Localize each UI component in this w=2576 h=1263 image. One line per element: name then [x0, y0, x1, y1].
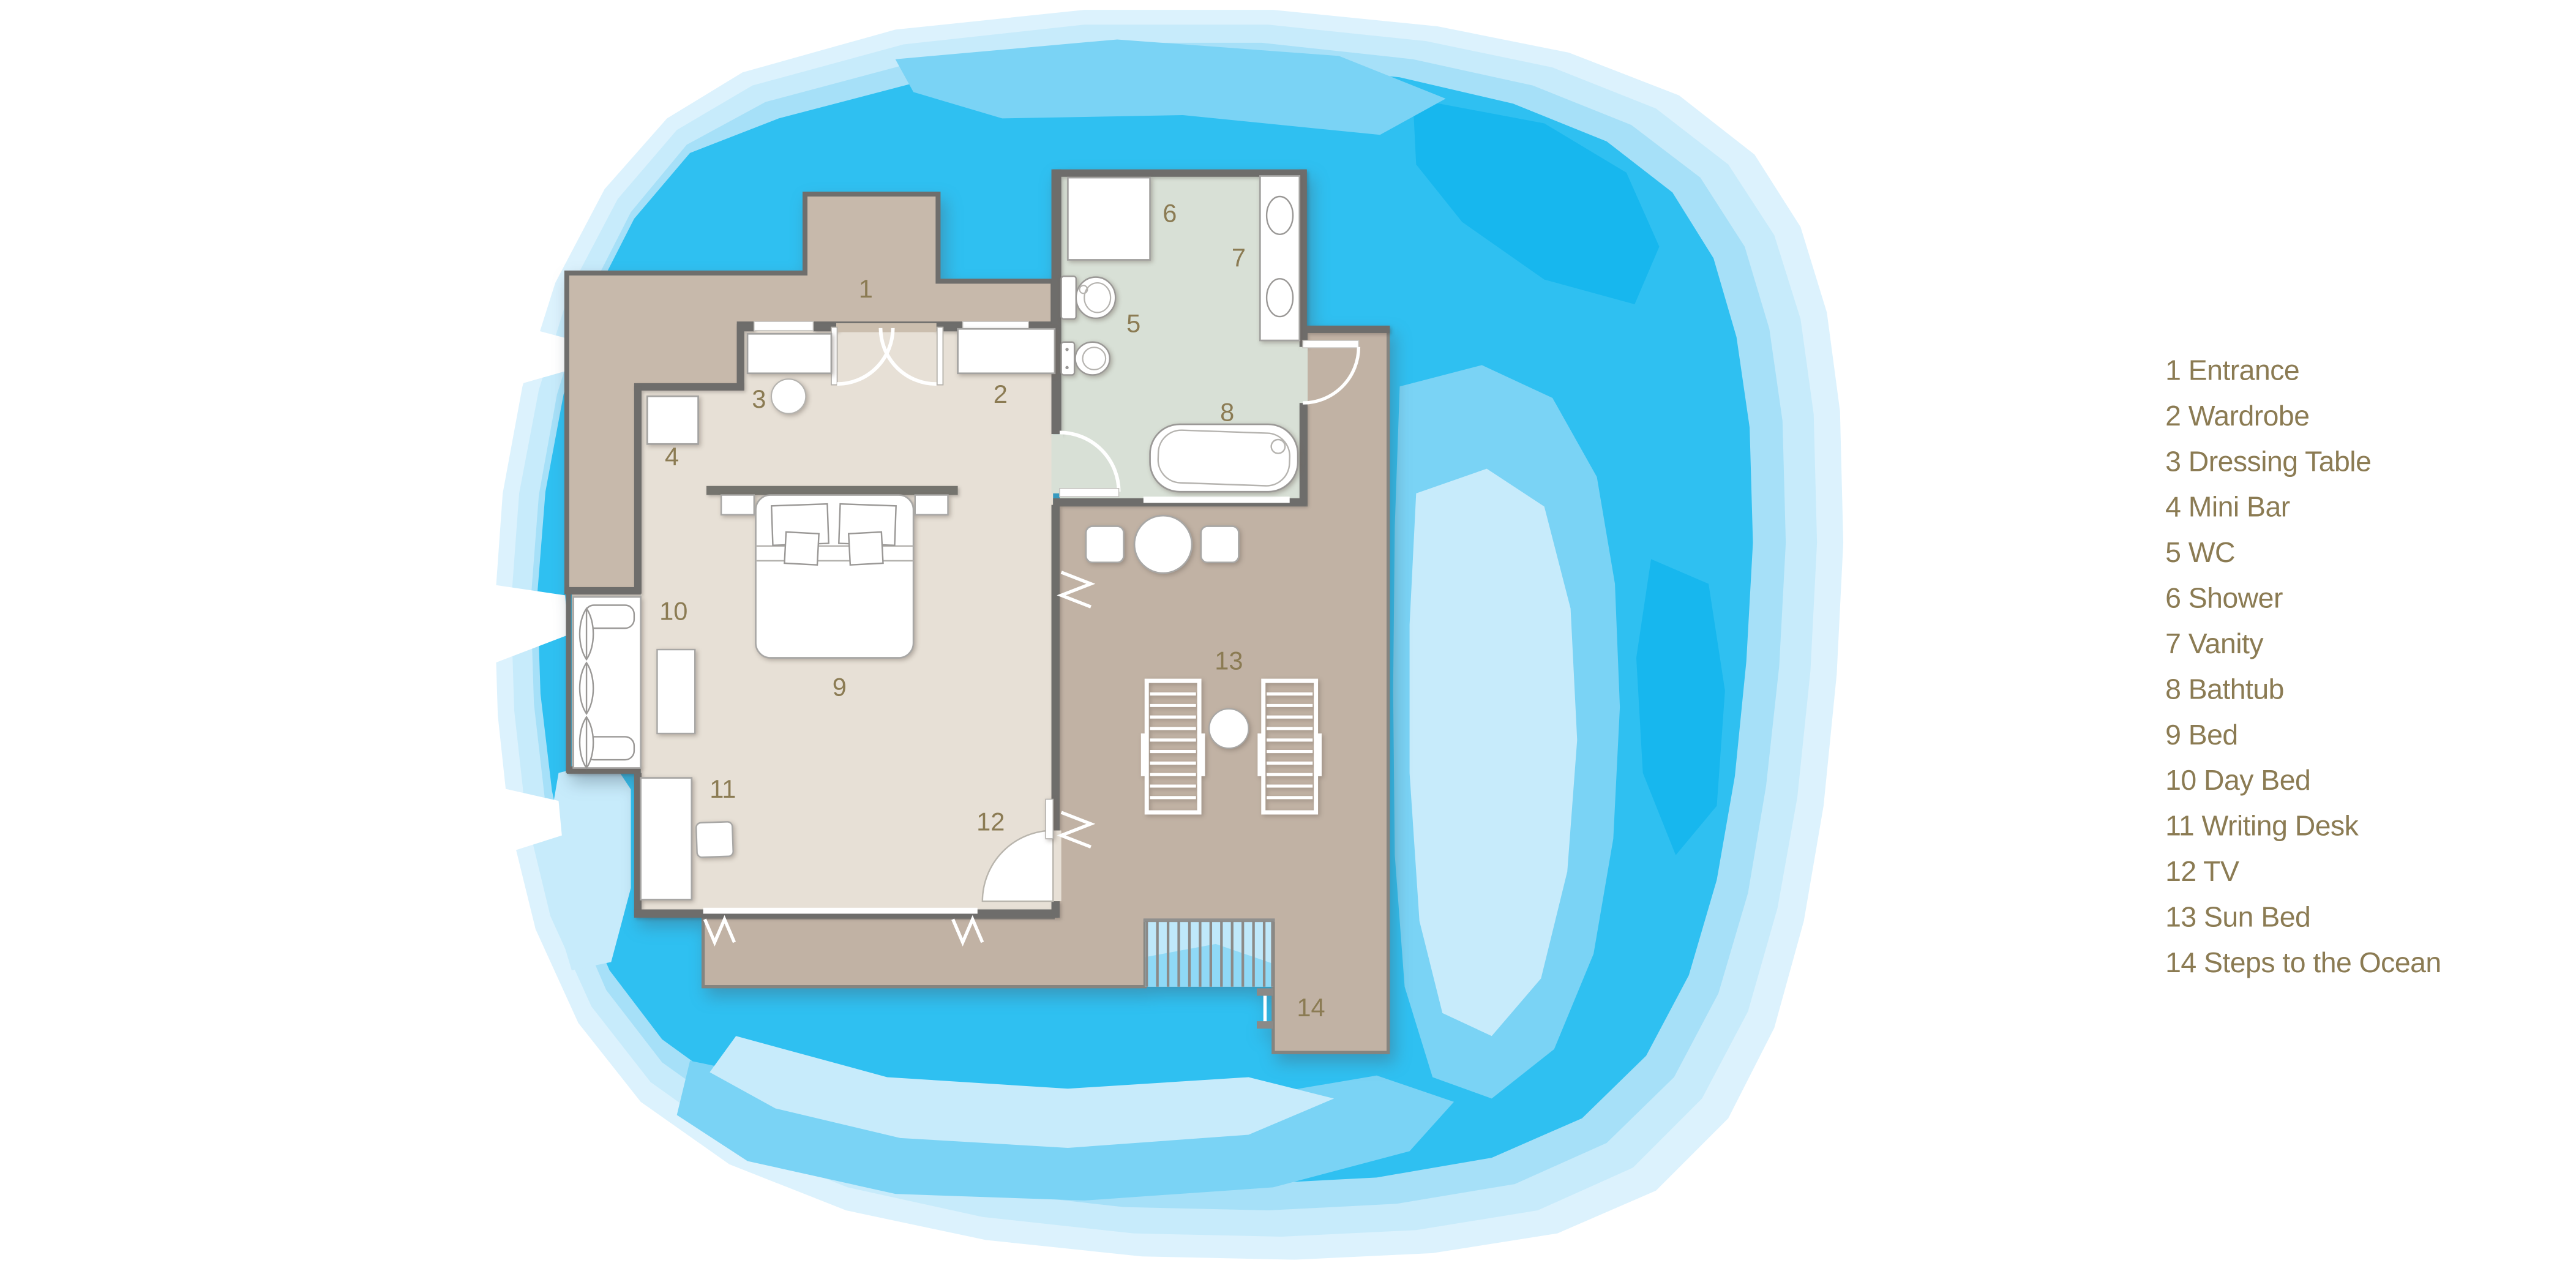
bottom-wall-window — [703, 908, 978, 914]
room-label-entrance: 1 — [859, 274, 873, 303]
sun-bed-left-arm-a — [1141, 733, 1147, 776]
side-table-symbol — [657, 650, 695, 733]
floor-plan-page: 1 2 3 4 5 6 7 8 9 10 11 12 13 14 1 Entra… — [0, 0, 2576, 1263]
legend: 1 Entrance 2 Wardrobe 3 Dressing Table 4… — [2165, 354, 2441, 978]
deck-chair-left — [1086, 527, 1124, 563]
wardrobe-symbol — [958, 329, 1055, 373]
deck-doorway — [1300, 347, 1308, 403]
room-label-writing-desk: 11 — [710, 774, 736, 803]
room-label-day-bed: 10 — [659, 597, 687, 626]
deck-table — [1134, 515, 1192, 573]
room-label-dressing-table: 3 — [752, 384, 766, 413]
entrance-door-leaf-right — [937, 328, 943, 385]
bed-pillow-small-left — [784, 532, 818, 565]
nightstand-left — [721, 495, 754, 515]
vanity-sink-bottom — [1267, 279, 1293, 317]
wall-step-vertical — [737, 324, 744, 389]
mini-bar-symbol — [647, 396, 698, 444]
ocean-ladder-bar-top — [1257, 988, 1273, 995]
bed-headboard-bar — [706, 486, 958, 495]
entrance-threshold — [836, 323, 937, 332]
legend-item-sun-bed: 13 Sun Bed — [2165, 901, 2310, 932]
wall-bath-right-upper — [1300, 170, 1307, 347]
legend-item-writing-desk: 11 Writing Desk — [2165, 810, 2359, 842]
room-label-steps: 14 — [1297, 993, 1325, 1022]
deck-door-leaf — [1303, 340, 1358, 348]
room-label-shower: 6 — [1163, 199, 1177, 228]
legend-item-mini-bar: 4 Mini Bar — [2165, 491, 2290, 523]
shower-symbol — [1068, 178, 1150, 260]
wall-right-lowstub — [1052, 901, 1060, 918]
legend-item-wardrobe: 2 Wardrobe — [2165, 400, 2309, 432]
legend-item-steps: 14 Steps to the Ocean — [2165, 946, 2441, 978]
vanity-symbol — [1260, 176, 1299, 340]
bidet-dot-1 — [1065, 348, 1068, 351]
room-label-bathtub: 8 — [1220, 398, 1234, 427]
toilet-tank — [1061, 276, 1076, 319]
room-label-wc: 5 — [1126, 309, 1140, 338]
front-wall-window-left — [754, 321, 814, 331]
bed-pillow-small-right — [848, 532, 883, 565]
bathtub-symbol — [1150, 424, 1298, 492]
legend-item-entrance: 1 Entrance — [2165, 354, 2299, 386]
nightstand-right — [915, 495, 948, 515]
room-label-vanity: 7 — [1232, 243, 1246, 272]
bidet-tank — [1061, 342, 1074, 375]
dressing-stool-symbol — [771, 379, 806, 413]
sun-bed-left-arm-b — [1199, 733, 1205, 776]
legend-item-bathtub: 8 Bathtub — [2165, 673, 2284, 705]
wall-right-upper — [1052, 170, 1061, 434]
legend-item-bed: 9 Bed — [2165, 719, 2238, 751]
ocean-ladder-bar-bottom — [1257, 1021, 1273, 1029]
room-label-sun-bed: 13 — [1215, 646, 1243, 675]
legend-item-day-bed: 10 Day Bed — [2165, 764, 2310, 796]
bidet-symbol — [1061, 342, 1110, 375]
floor-plan-canvas: 1 2 3 4 5 6 7 8 9 10 11 12 13 14 1 Entra… — [0, 0, 2576, 1263]
sun-bed-side-table — [1209, 709, 1248, 748]
wall-niche-top — [567, 587, 641, 594]
dressing-table-symbol — [747, 334, 831, 373]
legend-item-tv: 12 TV — [2165, 855, 2239, 887]
bathroom-door-leaf — [1060, 489, 1119, 497]
bathroom-window — [1144, 497, 1290, 503]
entrance-door-leaf-left — [831, 328, 837, 385]
sun-bed-right-arm-a — [1257, 733, 1263, 776]
wall-right-mid — [1052, 505, 1060, 831]
toilet-symbol — [1061, 276, 1116, 319]
vanity-sink-top — [1267, 197, 1293, 234]
legend-item-vanity: 7 Vanity — [2165, 628, 2264, 659]
steps-frame-top — [1144, 918, 1275, 922]
room-label-mini-bar: 4 — [665, 442, 679, 471]
bathroom-doorway — [1052, 434, 1063, 493]
tv-symbol — [1046, 799, 1053, 838]
day-bed-symbol — [574, 597, 641, 768]
writing-desk-symbol — [641, 778, 692, 900]
legend-item-shower: 6 Shower — [2165, 582, 2283, 614]
room-label-tv: 12 — [976, 808, 1005, 836]
legend-item-dressing-table: 3 Dressing Table — [2165, 445, 2371, 477]
room-label-wardrobe: 2 — [994, 380, 1008, 408]
legend-item-wc: 5 WC — [2165, 536, 2235, 568]
desk-chair-symbol — [696, 822, 733, 857]
wall-step-horizontal — [634, 383, 744, 391]
deck-chair-right — [1201, 527, 1239, 563]
bed-symbol — [721, 495, 948, 658]
wall-left-upper — [634, 386, 642, 593]
bidet-dot-2 — [1065, 366, 1068, 369]
wall-niche-left — [566, 587, 571, 773]
sun-bed-right-arm-b — [1316, 733, 1322, 776]
room-label-bed: 9 — [833, 672, 847, 701]
wall-deck-strip-top — [1306, 326, 1390, 333]
wall-bath-right-lower — [1300, 403, 1307, 505]
